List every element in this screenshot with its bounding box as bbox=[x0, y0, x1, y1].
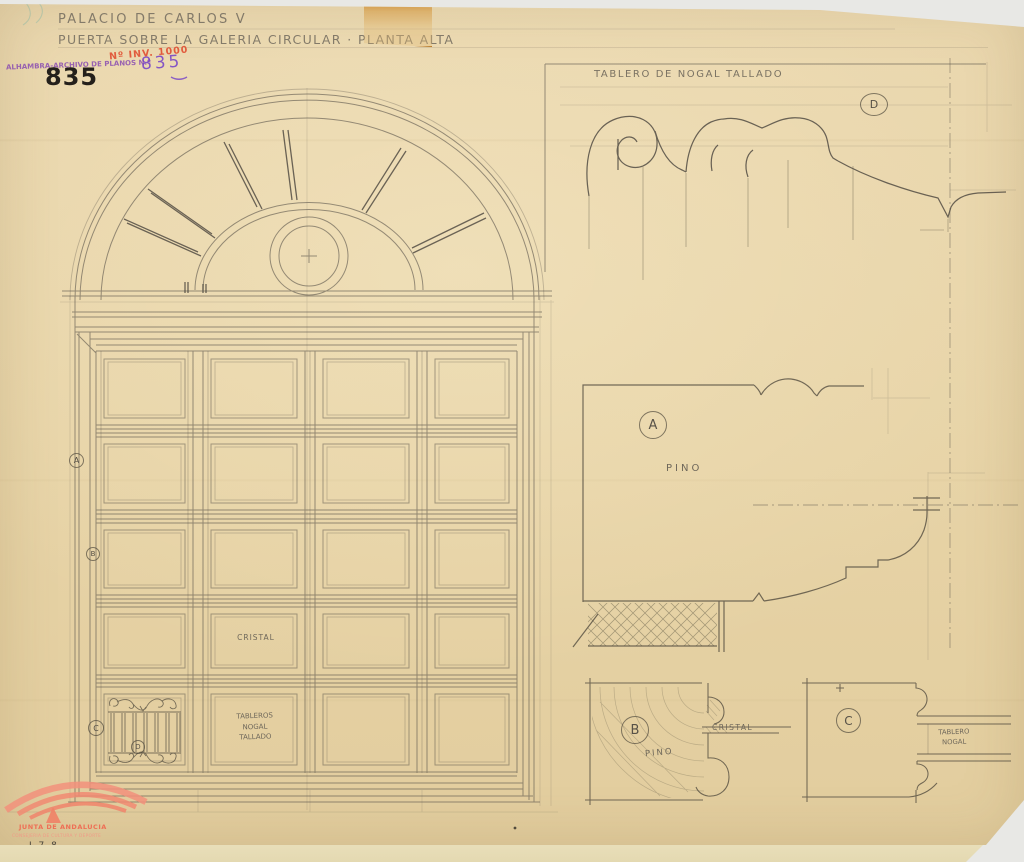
drawing-paper: PALACIO DE CARLOS V PUERTA SOBRE LA GALE… bbox=[0, 0, 1024, 845]
construction-lines bbox=[8, 29, 1016, 812]
door-panel-inner-frames bbox=[108, 362, 505, 762]
door-marker-d: D bbox=[131, 740, 145, 754]
door-marker-b-label: B bbox=[91, 550, 96, 558]
fanlight-spokes bbox=[124, 130, 486, 293]
detail-a-material: PINO bbox=[666, 464, 702, 474]
door-marker-a-label: A bbox=[74, 456, 79, 465]
detail-b-glass-label: CRISTAL bbox=[712, 724, 753, 732]
door-panel-label-line3: TALLADO bbox=[226, 731, 284, 744]
door-panel-frames bbox=[104, 359, 509, 765]
door-glass-label: CRISTAL bbox=[228, 634, 284, 642]
pencil-drawing bbox=[0, 0, 1024, 845]
scanned-sheet: PALACIO DE CARLOS V PUERTA SOBRE LA GALE… bbox=[0, 0, 1024, 862]
detail-b-marker-label: B bbox=[631, 723, 640, 738]
corner-scribble bbox=[23, 2, 42, 25]
carved-panel bbox=[108, 699, 181, 764]
detail-c-panel-label: TABLERO NOGAL bbox=[932, 726, 977, 748]
detail-a-marker-label: A bbox=[649, 418, 658, 433]
detail-a-crosshatch bbox=[548, 600, 754, 650]
footer-dept: CONSEJERIA DE CULTURA Y DEPORTE bbox=[12, 835, 101, 839]
door-marker-a: A bbox=[69, 453, 84, 468]
sheet-title-line1: PALACIO DE CARLOS V bbox=[58, 13, 247, 26]
detail-b-material: PINO bbox=[645, 748, 674, 759]
detail-d-marker: D bbox=[860, 93, 888, 116]
footer-org: JUNTA DE ANDALUCIA bbox=[19, 824, 107, 831]
detail-d-profile bbox=[587, 116, 1006, 217]
door-marker-c: C bbox=[88, 720, 104, 736]
detail-a-marker: A bbox=[639, 411, 667, 439]
purple-underline bbox=[171, 77, 187, 79]
details-caption: TABLERO DE NOGAL TALLADO bbox=[594, 70, 783, 80]
detail-c-marker-label: C bbox=[844, 714, 852, 728]
ink-speck bbox=[514, 827, 517, 830]
door-marker-b: B bbox=[86, 547, 100, 561]
detail-d-marker-label: D bbox=[870, 98, 878, 111]
lower-sheet-edge bbox=[0, 843, 1024, 862]
archive-number-printed: 835 bbox=[45, 65, 98, 89]
secondary-lines bbox=[70, 89, 928, 773]
door-elevation-lines bbox=[62, 64, 986, 802]
door-marker-c-label: C bbox=[93, 724, 99, 733]
detail-c-marker: C bbox=[836, 708, 861, 733]
detail-a-section bbox=[573, 379, 940, 652]
axis-lines bbox=[753, 58, 1018, 652]
door-marker-d-label: D bbox=[135, 743, 140, 751]
archive-number-handwritten: 835 bbox=[140, 54, 183, 74]
detail-c-section bbox=[802, 678, 1011, 803]
detail-d-construction bbox=[589, 160, 948, 280]
detail-b-section bbox=[585, 678, 791, 805]
detail-b-marker: B bbox=[621, 716, 649, 744]
detail-b-grain bbox=[588, 687, 727, 803]
door-panel-label: TABLEROS NOGAL TALLADO bbox=[225, 710, 284, 744]
detail-c-panel-line2: NOGAL bbox=[932, 736, 976, 748]
adhesive-tape bbox=[364, 0, 432, 47]
junta-logo bbox=[6, 785, 146, 823]
